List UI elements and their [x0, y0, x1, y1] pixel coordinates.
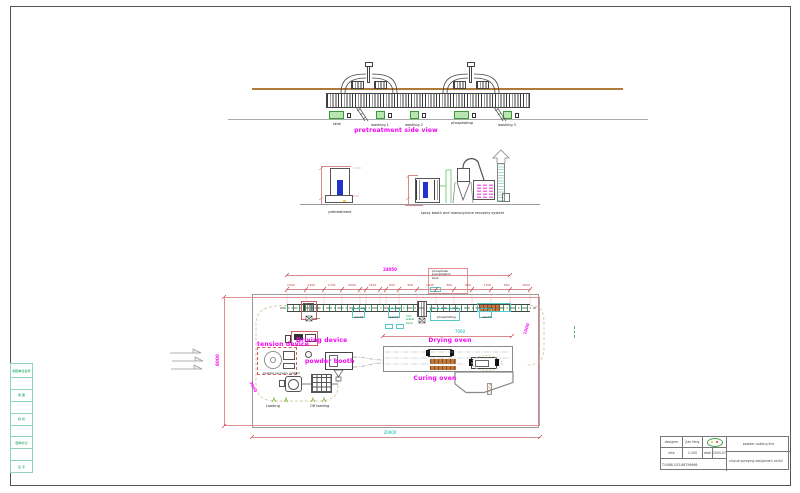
- logo-cell: [703, 437, 727, 448]
- product-cell: powder coating line: [727, 437, 790, 452]
- pretreatment-tunnel: [326, 93, 530, 108]
- sidebar-cell: 制图单位名称: [11, 364, 32, 378]
- designer-label-cell: designer: [661, 437, 683, 448]
- tension-inner-box: [283, 351, 295, 360]
- plan-small-tank-a: [385, 324, 393, 329]
- exhaust-stack-2: [469, 66, 472, 83]
- company-cell: xinyue spraying equipment co.ltd: [727, 452, 790, 471]
- pretreatment-elev-label: pretreatment: [322, 210, 358, 214]
- exhaust-box-1r: [374, 81, 387, 89]
- heater-bar-1: [430, 359, 456, 364]
- sidebar-cell-text: 签 字: [18, 465, 25, 469]
- ground-line-sideview: [228, 119, 648, 120]
- curing-oven-label: Curing oven: [400, 376, 470, 383]
- tank-skim: [329, 111, 344, 119]
- off-loading-label: Off loading: [310, 404, 329, 408]
- oven-exit-hatch: [487, 383, 492, 395]
- pretreat-elev-workpiece: [337, 180, 343, 195]
- date-label-cell: date: [703, 448, 713, 459]
- pretreat-elev-base: [325, 195, 353, 203]
- tank-phosphating: [454, 111, 469, 119]
- phosphate-note-tank: [430, 287, 441, 292]
- oven-dim-label: 7000: [430, 330, 490, 335]
- dim-seg: 1700: [328, 283, 336, 287]
- band-motor-hatch: [303, 303, 314, 312]
- dim-seg: 2000: [522, 283, 530, 287]
- filter-unit: [473, 180, 495, 200]
- sidebar-cell: 审 图: [11, 390, 32, 402]
- exhaust-stack-1: [367, 66, 370, 83]
- booth-side-hatch-l: [416, 180, 420, 200]
- hot-water-tank-note: hot water tank: [406, 315, 415, 325]
- sidebar-cell: 校 核: [11, 414, 32, 426]
- sidebar-cell-text: 图样标记: [15, 441, 27, 445]
- exhaust-cap-2: [467, 62, 475, 67]
- rate-label-cell: rate: [661, 448, 683, 459]
- dim-line-bottom: [252, 437, 540, 438]
- booth-workpiece: [423, 182, 428, 198]
- dim-seg: 1700: [483, 283, 491, 287]
- dim-seg: 1445: [426, 283, 434, 287]
- bottom-dim-label: 20000: [360, 431, 420, 436]
- drying-oven-label: Drying oven: [410, 338, 490, 345]
- loading-label: Loading: [266, 404, 280, 408]
- tension-inner-box2: [283, 363, 295, 369]
- burner-1-cap-r: [450, 350, 454, 356]
- tank-washing2: [410, 111, 419, 119]
- label-phosphating-side: phosphating: [447, 121, 477, 125]
- dim-seg: 600: [446, 283, 452, 287]
- exhaust-box-1l: [351, 81, 364, 89]
- pump-fitting-1: [347, 113, 351, 118]
- plan-label-wash1: wash1: [354, 316, 364, 319]
- sidebar-cell: [11, 378, 32, 390]
- designer-value-cell: jian feng: [683, 437, 703, 448]
- sidebar-cell-text: 制图单位名称: [12, 369, 30, 373]
- burner-2-cap-l: [469, 359, 473, 366]
- dim-seg: 600: [389, 283, 395, 287]
- booth-dim3: [405, 205, 423, 206]
- title-block: designer jian feng rate 1:100 date 2005.…: [660, 436, 789, 470]
- phone-cell: T:0086-523-88759666: [661, 459, 727, 471]
- pump-fitting-5: [515, 113, 519, 118]
- sidebar-cell: 图样标记: [11, 437, 32, 449]
- sidebar-cell: [11, 402, 32, 414]
- dim-seg: 2250: [307, 283, 315, 287]
- pump-fitting-3: [422, 113, 426, 118]
- sidebar-cell-text: 校 核: [18, 417, 25, 421]
- dim-seg: 1500: [287, 283, 295, 287]
- dim-seg: 650: [504, 283, 510, 287]
- booth-side-hatch-r: [434, 180, 438, 200]
- tension-device-label: tension device: [257, 342, 309, 349]
- burner-1: [428, 349, 452, 357]
- yellow-mark-1: [343, 200, 346, 202]
- label-washing3: washing 3: [494, 123, 520, 127]
- band-transfer-box: [417, 301, 427, 317]
- plan-label-wash3: wash3: [482, 316, 492, 319]
- plan-label-phosphating: phosphating: [437, 316, 456, 319]
- sidebar-cell: [11, 449, 32, 461]
- dim-seg: 800: [465, 283, 471, 287]
- date-value-cell: 2005.07: [713, 448, 727, 459]
- label-skim: skim: [326, 122, 348, 126]
- sidebar-cell: [11, 426, 32, 438]
- burner-2-inner: [475, 360, 489, 367]
- plan-right-mark: [574, 326, 575, 338]
- logo-dot-red: [716, 441, 718, 443]
- spray-elev-label: spray booth and monocyclone recovery sys…: [405, 211, 520, 215]
- plan-label-wash2: wash2: [389, 316, 399, 319]
- monorail-line: [252, 88, 623, 90]
- pretreat-elev-dim: [321, 166, 322, 204]
- sideview-title: pretreatment side view: [340, 128, 452, 135]
- rate-value-cell: 1:100: [683, 448, 703, 459]
- phosphate-note: phosphate precipitation tank: [432, 270, 451, 280]
- pump-fitting-4: [472, 113, 476, 118]
- company-logo: [707, 438, 723, 447]
- recovery-cyclone-circle: [288, 379, 299, 390]
- plan-small-tank-b: [396, 324, 404, 329]
- recovery-attach: [279, 380, 285, 387]
- phosphate-note-line3: tank: [432, 277, 451, 280]
- dim-segment-row: 1500 2250 1700 2000 1450 600 800 1445 60…: [287, 283, 530, 287]
- recovery-filter-grid: [311, 374, 332, 393]
- dim-seg: 1450: [369, 283, 377, 287]
- sidebar-cell: 签 字: [11, 461, 32, 472]
- exhaust-cap-1: [365, 62, 373, 67]
- pump-fitting-2: [388, 113, 392, 118]
- booth-dim: [408, 175, 409, 205]
- burner-1-cap-l: [426, 350, 430, 356]
- burner-2-cap-r: [495, 359, 499, 366]
- heater-bar-2: [430, 366, 456, 371]
- dim-line-top: [287, 275, 510, 276]
- dim-seg: 2000: [348, 283, 356, 287]
- logo-dot-yellow: [711, 441, 713, 443]
- sidebar-cell-text: 审 图: [18, 393, 25, 397]
- pretreat-elev-dim2: [321, 166, 351, 167]
- powder-booth-label: powder booth: [305, 359, 354, 366]
- reciprocator-circle: [305, 351, 312, 358]
- dim-seg: 800: [408, 283, 414, 287]
- sidebar-title-strip: 制图单位名称 审 图 校 核 图样标记 签 字: [10, 363, 33, 473]
- exhaust-box-2r: [476, 81, 489, 89]
- plan-overall-dim: 24050: [350, 268, 430, 273]
- hwt-line3: tank: [406, 322, 415, 325]
- cyclone-cylinder: [457, 168, 470, 182]
- dim-chain-line: [287, 289, 530, 290]
- tank-washing3: [503, 111, 512, 119]
- exhaust-box-2l: [453, 81, 466, 89]
- tank-washing1: [376, 111, 385, 119]
- powder-recovery-label: powder recovery system: [263, 372, 300, 375]
- drawing-sheet: skim washing 1 washing 2 phosphating was…: [0, 0, 800, 493]
- stack-base-box: [502, 193, 510, 202]
- booth-dim2: [408, 175, 418, 176]
- left-dim-label: 8000: [216, 354, 221, 366]
